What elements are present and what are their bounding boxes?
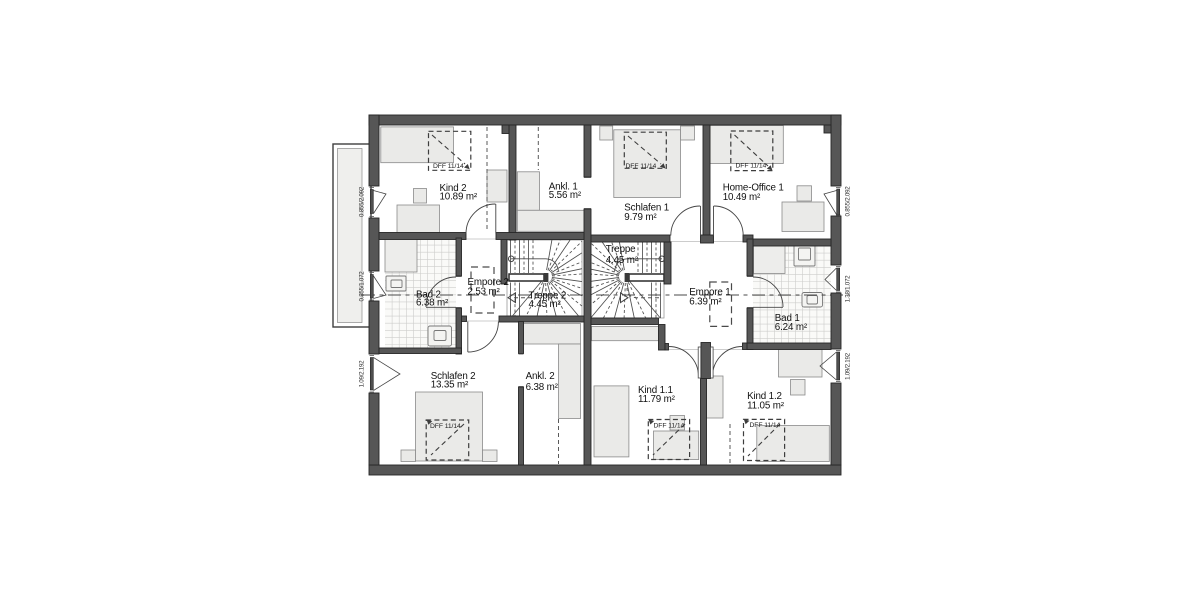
svg-text:DFF 11/14: DFF 11/14 — [430, 423, 461, 430]
svg-text:0.855/2.092: 0.855/2.092 — [845, 186, 852, 217]
svg-text:1.09/2.192: 1.09/2.192 — [359, 360, 366, 388]
svg-text:DFF 11/14: DFF 11/14 — [736, 163, 767, 170]
svg-text:6.38 m²: 6.38 m² — [526, 382, 559, 393]
svg-text:1.38/1.072: 1.38/1.072 — [845, 275, 852, 303]
svg-text:DFF 11/14: DFF 11/14 — [654, 423, 685, 430]
svg-text:9.79 m²: 9.79 m² — [624, 212, 657, 223]
svg-text:0.855/1.072: 0.855/1.072 — [359, 271, 366, 302]
svg-text:5.56 m²: 5.56 m² — [549, 190, 582, 201]
svg-text:6.24 m²: 6.24 m² — [775, 322, 808, 333]
svg-text:Ankl. 2: Ankl. 2 — [526, 371, 555, 382]
svg-text:11.05 m²: 11.05 m² — [747, 401, 785, 412]
svg-text:2.53 m²: 2.53 m² — [468, 287, 501, 298]
svg-text:0.855/2.092: 0.855/2.092 — [359, 186, 366, 217]
svg-text:DFF 11/14: DFF 11/14 — [750, 422, 781, 429]
svg-text:13.35 m²: 13.35 m² — [431, 380, 469, 391]
svg-text:DFF 11/14: DFF 11/14 — [626, 163, 657, 170]
svg-text:10.89 m²: 10.89 m² — [440, 192, 478, 203]
svg-text:11.79 m²: 11.79 m² — [638, 394, 676, 405]
svg-text:1.09/2.192: 1.09/2.192 — [845, 352, 852, 380]
svg-text:4.45 m²: 4.45 m² — [529, 299, 562, 310]
svg-text:DFF 11/14: DFF 11/14 — [433, 163, 464, 170]
svg-text:10.49 m²: 10.49 m² — [723, 192, 761, 203]
svg-text:6.38 m²: 6.38 m² — [416, 298, 449, 309]
svg-text:6.39 m²: 6.39 m² — [689, 297, 722, 308]
svg-text:4.45 m²: 4.45 m² — [606, 255, 639, 266]
svg-text:Treppe: Treppe — [606, 244, 636, 255]
